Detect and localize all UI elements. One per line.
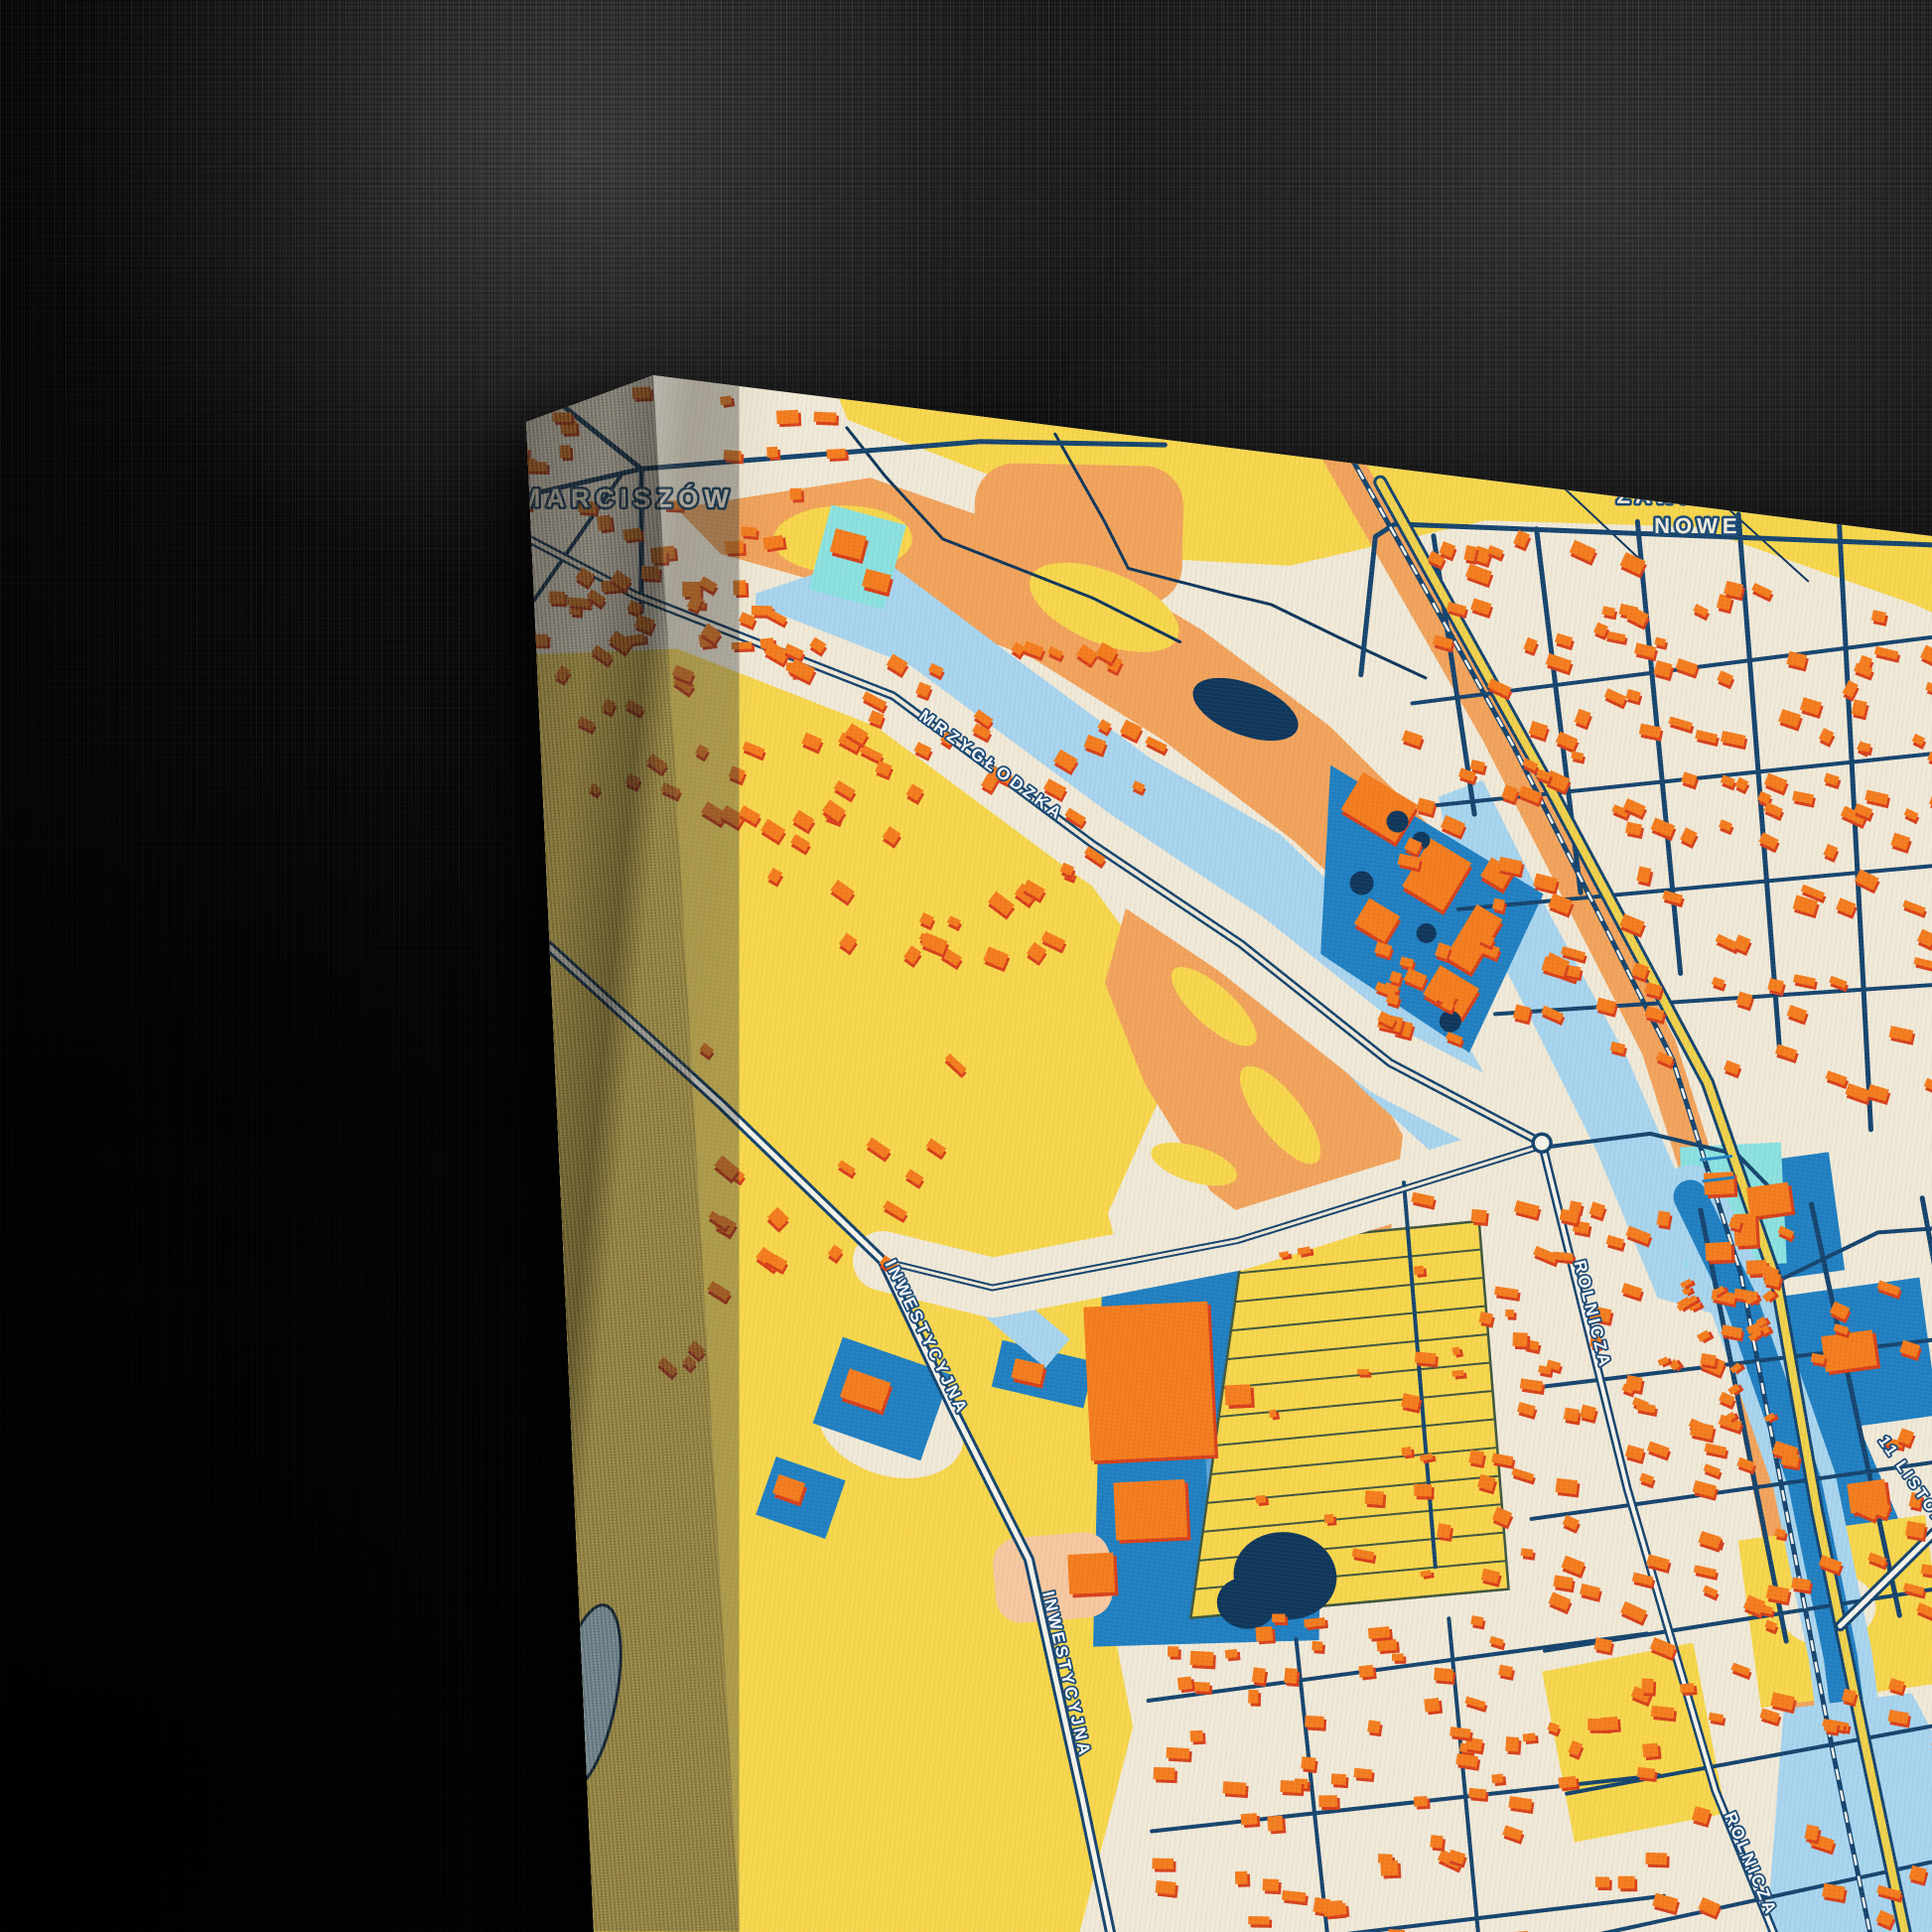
roundabout-icon [1532,1133,1552,1153]
place-label: ZAWIERCIE [1616,483,1782,509]
place-label: MARCISZÓW [519,483,735,513]
scene: MARCISZÓWZAWIERCIENOWEMRZYGŁODZKAINWESTY… [0,0,1932,1932]
place-label: NOWE [1654,513,1742,538]
city-map-svg: MARCISZÓWZAWIERCIENOWEMRZYGŁODZKAINWESTY… [99,291,1932,1932]
canvas-print: MARCISZÓWZAWIERCIENOWEMRZYGŁODZKAINWESTY… [0,0,1932,1932]
canvas-print-wrapper: MARCISZÓWZAWIERCIENOWEMRZYGŁODZKAINWESTY… [0,0,1932,1932]
